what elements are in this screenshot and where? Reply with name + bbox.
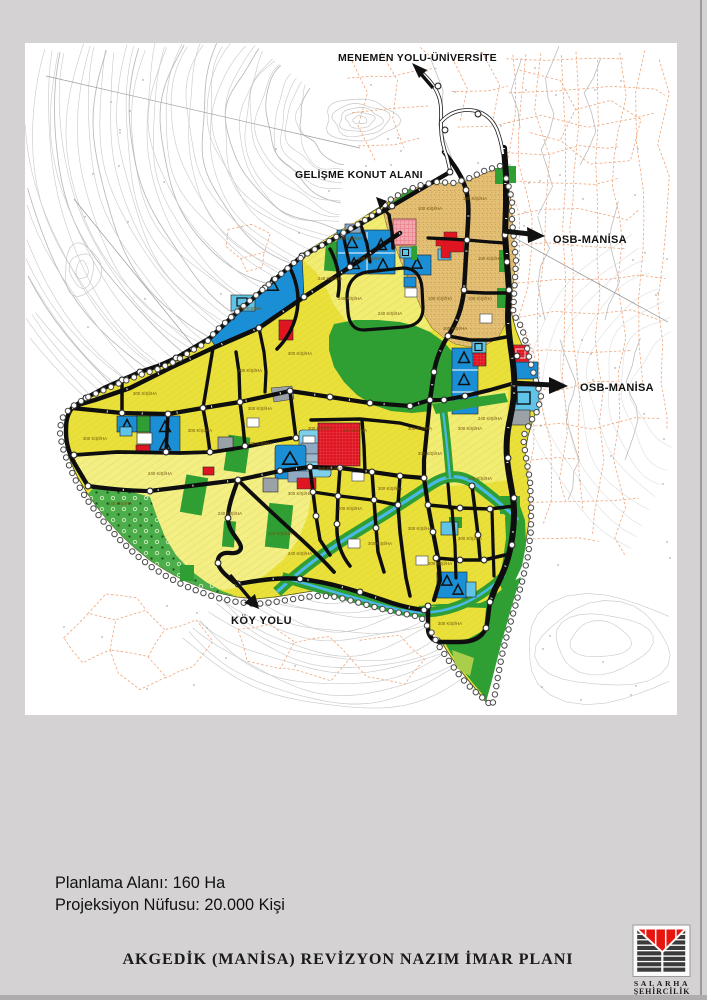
svg-text:240 KİŞİ/HA: 240 KİŞİ/HA [478,416,502,421]
svg-text:240 KİŞİ/HA: 240 KİŞİ/HA [268,531,292,536]
svg-text:300 KİŞİ/HA: 300 KİŞİ/HA [468,476,492,481]
svg-text:ŞEHİRCİLİK: ŞEHİRCİLİK [634,986,690,996]
svg-text:300 KİŞİ/HA: 300 KİŞİ/HA [428,561,452,566]
svg-text:OSB-MANİSA: OSB-MANİSA [553,233,627,246]
svg-text:Projeksiyon Nüfusu: 20.000 Kiş: Projeksiyon Nüfusu: 20.000 Kişi [55,896,285,914]
svg-text:240 KİŞİ/HA: 240 KİŞİ/HA [338,296,362,301]
svg-text:OSB-MANİSA: OSB-MANİSA [580,381,654,394]
svg-text:300 KİŞİ/HA: 300 KİŞİ/HA [408,426,432,431]
svg-text:240 KİŞİ/HA: 240 KİŞİ/HA [218,511,242,516]
svg-text:300 KİŞİ/HA: 300 KİŞİ/HA [458,426,482,431]
svg-text:300 KİŞİ/HA: 300 KİŞİ/HA [238,368,262,373]
svg-text:100 KİŞİ/HA: 100 KİŞİ/HA [463,196,487,201]
svg-text:100 KİŞİ/HA: 100 KİŞİ/HA [478,256,502,261]
svg-text:300 KİŞİ/HA: 300 KİŞİ/HA [133,391,157,396]
svg-text:240 KİŞİ/HA: 240 KİŞİ/HA [288,551,312,556]
svg-text:300 KİŞİ/HA: 300 KİŞİ/HA [438,621,462,626]
svg-text:300 KİŞİ/HA: 300 KİŞİ/HA [188,428,212,433]
svg-text:300 KİŞİ/HA: 300 KİŞİ/HA [248,441,272,446]
svg-text:GELİŞME KONUT ALANI: GELİŞME KONUT ALANI [295,168,423,181]
svg-text:300 KİŞİ/HA: 300 KİŞİ/HA [83,436,107,441]
svg-text:300 KİŞİ/HA: 300 KİŞİ/HA [318,466,342,471]
svg-text:300 KİŞİ/HA: 300 KİŞİ/HA [238,306,262,311]
svg-text:AKGEDİK (MANİSA) REVİZYON NAZ: AKGEDİK (MANİSA) REVİZYON NAZIM İMAR PLA… [122,949,573,968]
svg-text:240 KİŞİ/HA: 240 KİŞİ/HA [378,311,402,316]
svg-text:240 KİŞİ/HA: 240 KİŞİ/HA [148,471,172,476]
svg-text:300 KİŞİ/HA: 300 KİŞİ/HA [368,541,392,546]
svg-text:Planlama Alanı: 160 Ha: Planlama Alanı: 160 Ha [55,874,226,892]
svg-text:300 KİŞİ/HA: 300 KİŞİ/HA [343,428,367,433]
svg-text:100 KİŞİ/HA: 100 KİŞİ/HA [443,326,467,331]
svg-text:MENEMEN YOLU-ÜNİVERSİTE: MENEMEN YOLU-ÜNİVERSİTE [338,51,497,64]
svg-text:100 KİŞİ/HA: 100 KİŞİ/HA [428,296,452,301]
svg-text:100 KİŞİ/HA: 100 KİŞİ/HA [468,296,492,301]
svg-text:300 KİŞİ/HA: 300 KİŞİ/HA [288,351,312,356]
svg-text:240 KİŞİ/HA: 240 KİŞİ/HA [358,256,382,261]
svg-text:300 KİŞİ/HA: 300 KİŞİ/HA [248,406,272,411]
svg-text:300 KİŞİ/HA: 300 KİŞİ/HA [418,451,442,456]
svg-text:100 KİŞİ/HA: 100 KİŞİ/HA [418,206,442,211]
svg-text:240 KİŞİ/HA: 240 KİŞİ/HA [108,501,132,506]
svg-text:300 KİŞİ/HA: 300 KİŞİ/HA [458,536,482,541]
svg-text:240 KİŞİ/HA: 240 KİŞİ/HA [338,236,362,241]
svg-text:240 KİŞİ/HA: 240 KİŞİ/HA [318,276,342,281]
svg-text:KÖY YOLU: KÖY YOLU [231,614,292,627]
svg-text:300 KİŞİ/HA: 300 KİŞİ/HA [338,506,362,511]
svg-text:300 KİŞİ/HA: 300 KİŞİ/HA [308,426,332,431]
svg-text:300 KİŞİ/HA: 300 KİŞİ/HA [288,491,312,496]
svg-text:300 KİŞİ/HA: 300 KİŞİ/HA [378,486,402,491]
svg-text:300 KİŞİ/HA: 300 KİŞİ/HA [408,526,432,531]
